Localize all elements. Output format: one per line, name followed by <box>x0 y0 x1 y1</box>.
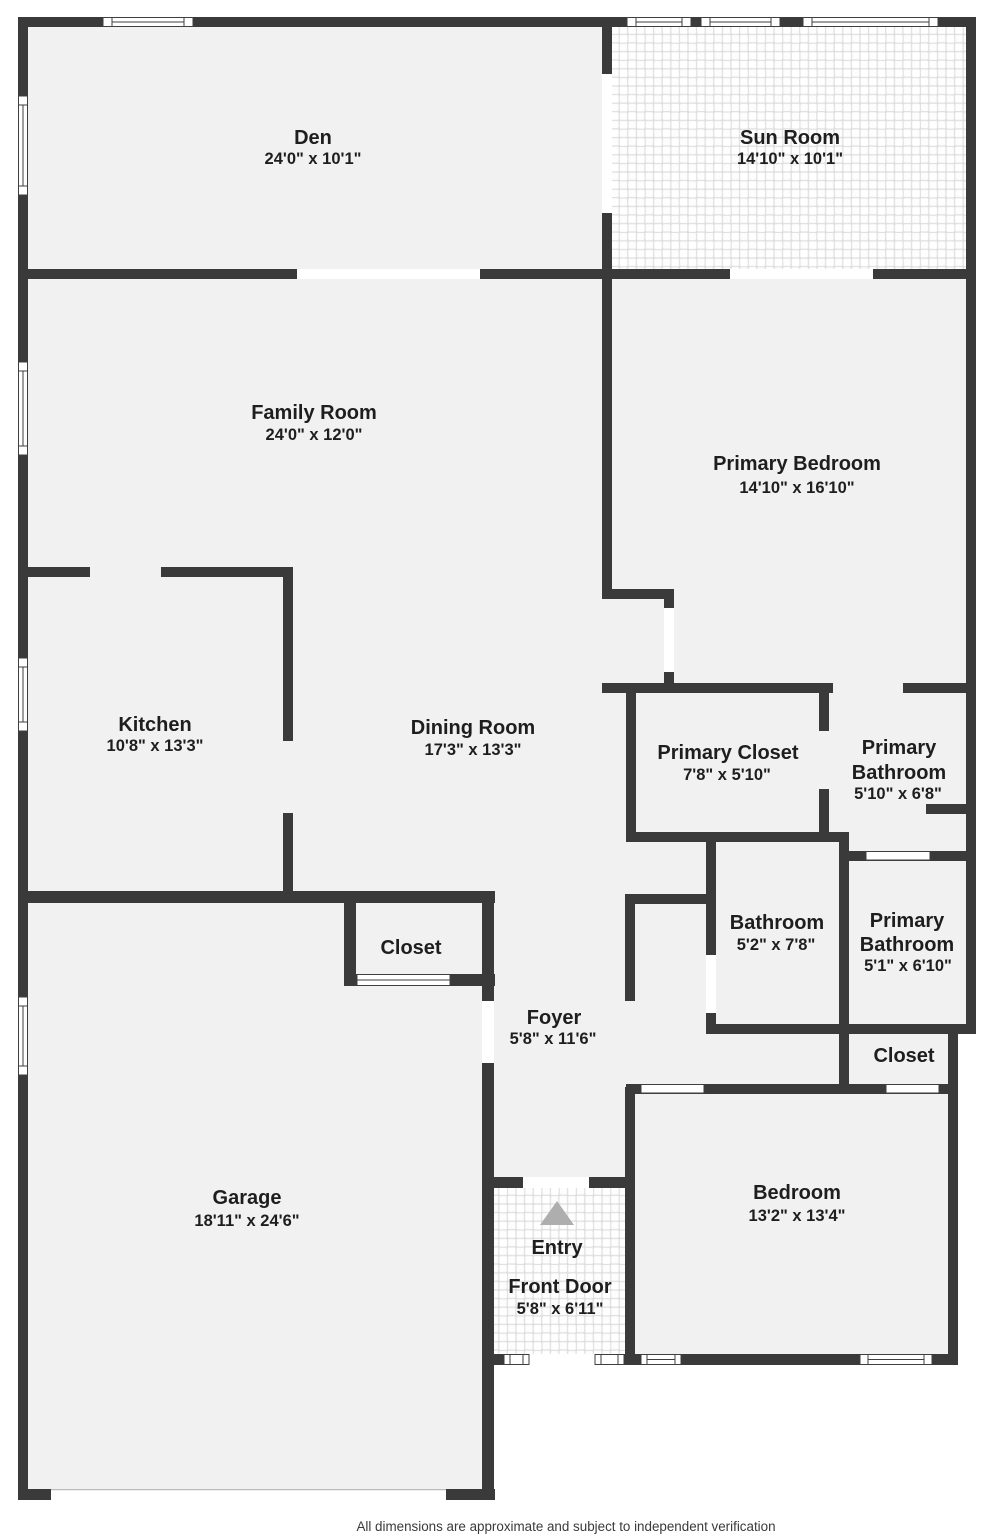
svg-text:5'1" x 6'10": 5'1" x 6'10" <box>864 957 952 975</box>
svg-text:Bathroom: Bathroom <box>852 762 946 784</box>
svg-text:Entry: Entry <box>531 1237 583 1259</box>
svg-text:Foyer: Foyer <box>527 1007 582 1029</box>
svg-text:All dimensions are approximate: All dimensions are approximate and subje… <box>356 1519 775 1534</box>
svg-text:7'8" x 5'10": 7'8" x 5'10" <box>683 766 771 784</box>
svg-text:17'3" x 13'3": 17'3" x 13'3" <box>425 741 522 759</box>
svg-text:24'0" x 12'0": 24'0" x 12'0" <box>266 426 363 444</box>
svg-text:5'2" x 7'8": 5'2" x 7'8" <box>737 936 816 954</box>
svg-text:18'11" x 24'6": 18'11" x 24'6" <box>194 1212 299 1230</box>
svg-text:13'2" x 13'4": 13'2" x 13'4" <box>749 1207 846 1225</box>
svg-text:Kitchen: Kitchen <box>118 714 191 736</box>
svg-text:14'10" x 16'10": 14'10" x 16'10" <box>739 479 854 497</box>
svg-text:5'10" x 6'8": 5'10" x 6'8" <box>854 785 942 803</box>
svg-text:Primary: Primary <box>862 737 937 759</box>
svg-text:Primary Bedroom: Primary Bedroom <box>713 453 881 475</box>
svg-text:Garage: Garage <box>213 1187 282 1209</box>
svg-text:Closet: Closet <box>873 1045 934 1067</box>
svg-text:24'0" x 10'1": 24'0" x 10'1" <box>265 150 362 168</box>
svg-text:5'8" x 6'11": 5'8" x 6'11" <box>517 1300 604 1318</box>
svg-text:Primary: Primary <box>870 910 945 932</box>
svg-text:14'10" x 10'1": 14'10" x 10'1" <box>737 150 843 168</box>
svg-text:Bedroom: Bedroom <box>753 1182 841 1204</box>
svg-text:Bathroom: Bathroom <box>730 912 824 934</box>
svg-text:Closet: Closet <box>380 937 441 959</box>
svg-text:Primary Closet: Primary Closet <box>657 742 799 764</box>
svg-text:Den: Den <box>294 127 332 149</box>
svg-text:5'8" x 11'6": 5'8" x 11'6" <box>510 1030 597 1048</box>
svg-text:Family Room: Family Room <box>251 402 377 424</box>
svg-text:10'8" x 13'3": 10'8" x 13'3" <box>107 737 204 755</box>
svg-text:Sun Room: Sun Room <box>740 127 840 149</box>
svg-text:Front Door: Front Door <box>508 1276 612 1298</box>
svg-text:Dining Room: Dining Room <box>411 717 535 739</box>
svg-text:Bathroom: Bathroom <box>860 934 954 956</box>
